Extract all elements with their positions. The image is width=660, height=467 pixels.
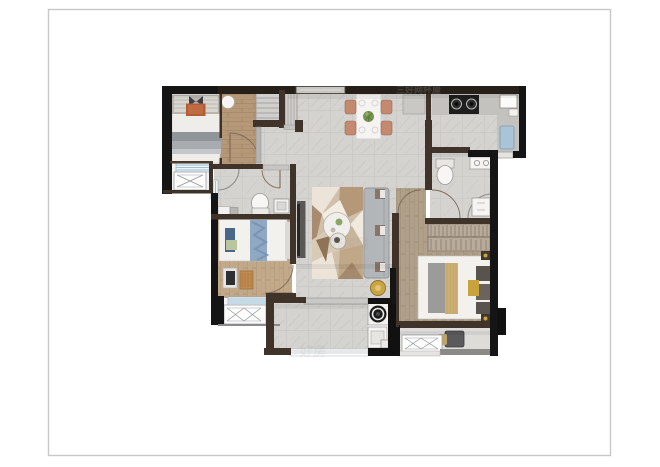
svg-text:好房网: 好房网 [329,236,369,251]
svg-text:好房: 好房 [299,344,326,359]
svg-text:三好网杯屋: 三好网杯屋 [396,84,441,95]
